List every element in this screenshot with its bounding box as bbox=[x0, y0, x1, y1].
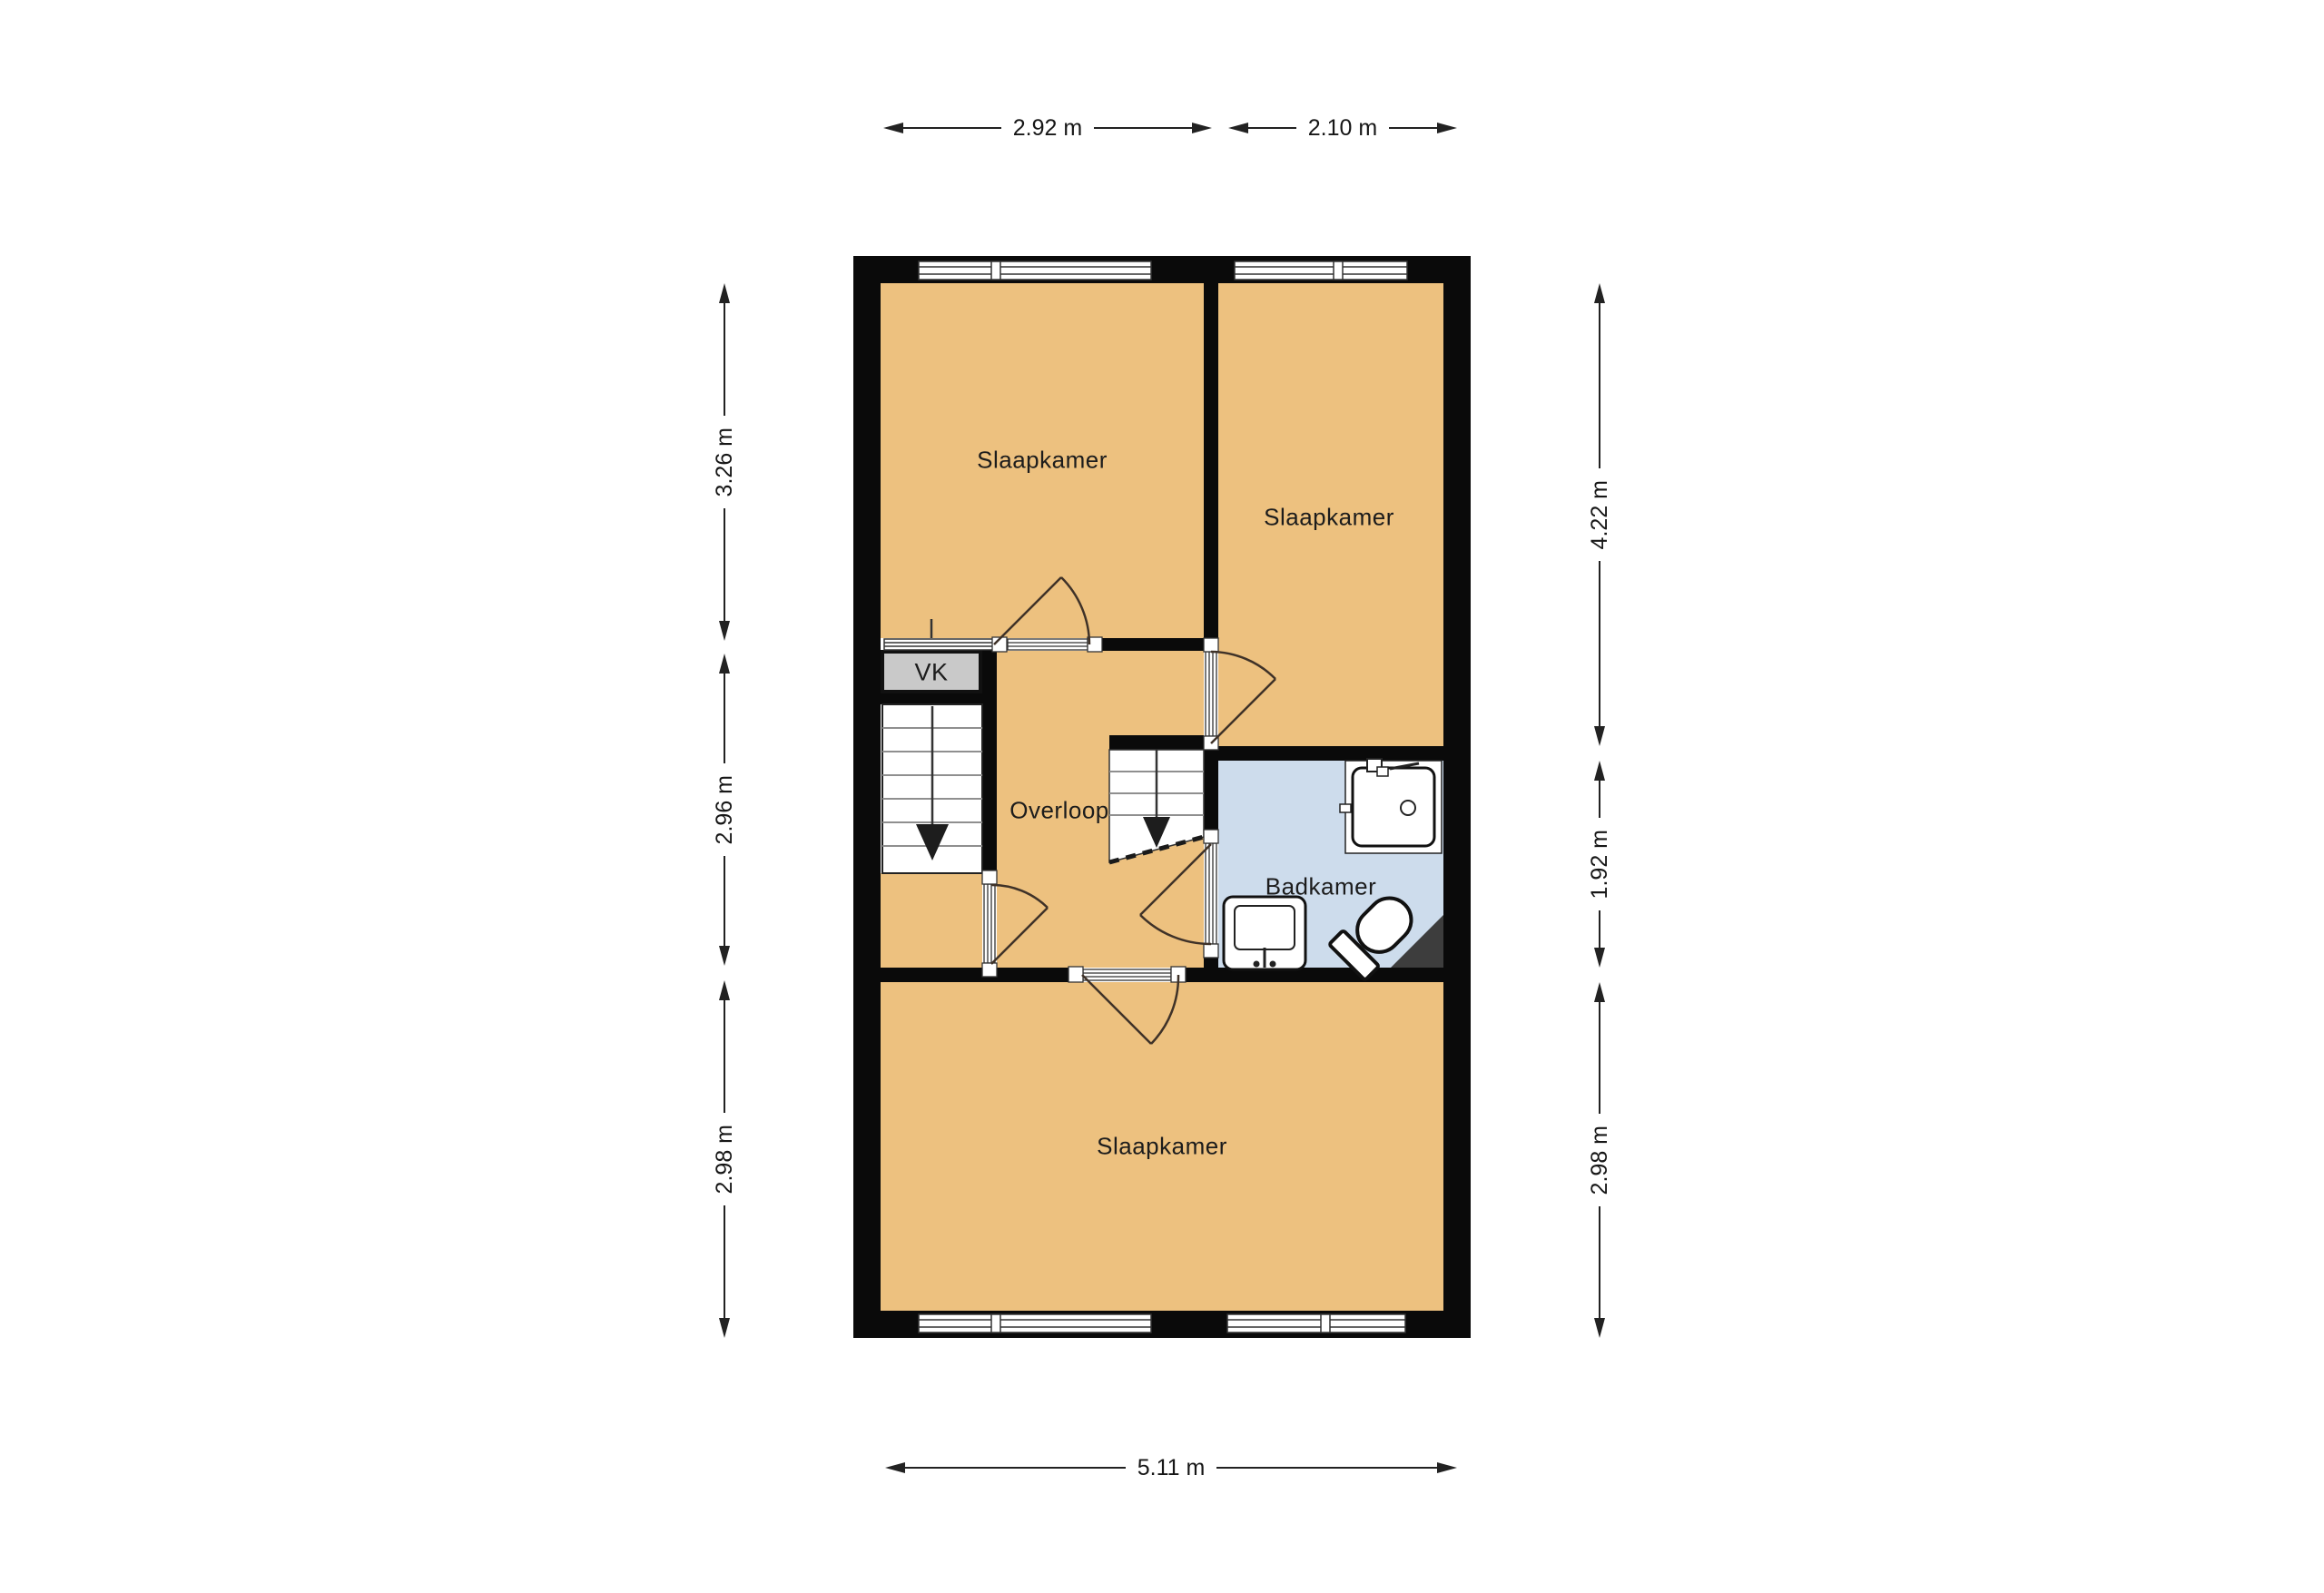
plan-linework bbox=[0, 0, 2324, 1593]
dimension-label: 3.26 m bbox=[713, 416, 736, 508]
dimension-bottom-1: 5.11 m bbox=[885, 1456, 1457, 1480]
sink-icon bbox=[1224, 897, 1305, 969]
closet-glass-panel bbox=[884, 619, 994, 650]
door-frame bbox=[1204, 638, 1218, 750]
dim-arrow-icon bbox=[1228, 123, 1248, 133]
dim-arrow-icon bbox=[1594, 726, 1605, 746]
dimension-label: 2.98 m bbox=[1588, 1114, 1611, 1206]
dim-arrow-icon bbox=[719, 283, 730, 303]
window bbox=[919, 1314, 1151, 1332]
dimension-label: 1.92 m bbox=[1588, 818, 1611, 910]
dimension-left-1: 3.26 m bbox=[713, 283, 736, 641]
room-label-bedroom-top-left: Slaapkamer bbox=[977, 447, 1108, 475]
dim-arrow-icon bbox=[1594, 283, 1605, 303]
dim-arrow-icon bbox=[1192, 123, 1212, 133]
door-frame bbox=[992, 637, 1102, 652]
dim-arrow-icon bbox=[1594, 948, 1605, 968]
dim-arrow-icon bbox=[719, 621, 730, 641]
floorplan-canvas: Slaapkamer Slaapkamer Overloop Badkamer … bbox=[0, 0, 2324, 1593]
dim-arrow-icon bbox=[883, 123, 903, 133]
room-label-bedroom-bottom: Slaapkamer bbox=[1097, 1133, 1227, 1161]
dimension-label: 2.96 m bbox=[713, 763, 736, 856]
dim-arrow-icon bbox=[719, 946, 730, 966]
dimension-label: 2.98 m bbox=[713, 1113, 736, 1205]
dimension-right-3: 2.98 m bbox=[1588, 982, 1611, 1338]
dim-arrow-icon bbox=[719, 1318, 730, 1338]
dim-arrow-icon bbox=[719, 980, 730, 1000]
room-label-landing: Overloop bbox=[1009, 797, 1109, 825]
shower-icon bbox=[1340, 759, 1442, 853]
dimension-top-2: 2.10 m bbox=[1228, 116, 1457, 140]
room-label-bathroom: Badkamer bbox=[1265, 873, 1377, 901]
stairs-winder-icon bbox=[1109, 750, 1204, 862]
stairs-down-icon bbox=[882, 704, 982, 873]
dimension-label: 2.10 m bbox=[1296, 116, 1389, 140]
window bbox=[1235, 261, 1407, 280]
dim-arrow-icon bbox=[885, 1462, 905, 1473]
dim-arrow-icon bbox=[1437, 123, 1457, 133]
dimension-right-1: 4.22 m bbox=[1588, 283, 1611, 746]
dimension-right-2: 1.92 m bbox=[1588, 761, 1611, 968]
room-label-closet: VK bbox=[914, 659, 948, 687]
dimension-label: 5.11 m bbox=[1126, 1456, 1217, 1480]
dim-arrow-icon bbox=[1594, 1318, 1605, 1338]
dim-arrow-icon bbox=[1594, 761, 1605, 781]
dimension-left-3: 2.98 m bbox=[713, 980, 736, 1338]
dim-arrow-icon bbox=[719, 654, 730, 674]
dimension-top-1: 2.92 m bbox=[883, 116, 1212, 140]
window bbox=[1227, 1314, 1405, 1332]
dimension-label: 2.92 m bbox=[1001, 116, 1094, 140]
dim-arrow-icon bbox=[1437, 1462, 1457, 1473]
window bbox=[919, 261, 1151, 280]
dimension-label: 4.22 m bbox=[1588, 468, 1611, 561]
room-label-bedroom-top-right: Slaapkamer bbox=[1264, 504, 1394, 532]
dim-arrow-icon bbox=[1594, 982, 1605, 1002]
dimension-left-2: 2.96 m bbox=[713, 654, 736, 966]
